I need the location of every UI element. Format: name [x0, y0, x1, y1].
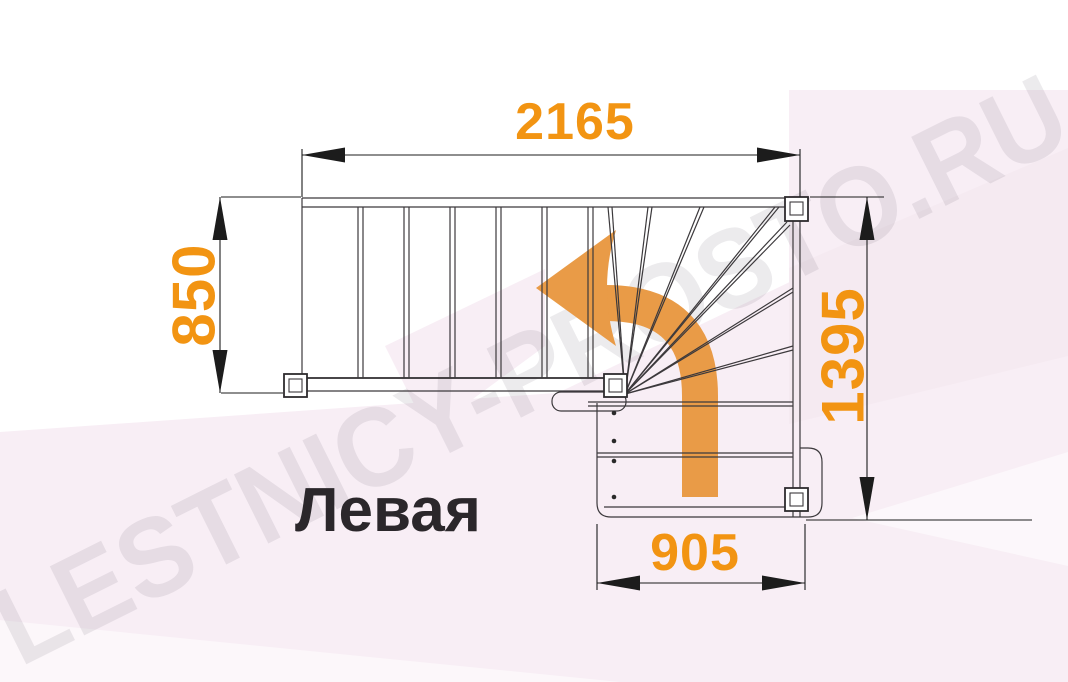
dimension-left-label: 850 — [161, 243, 228, 346]
tread-dot — [612, 411, 617, 416]
tread-dot — [612, 495, 617, 500]
newel-post-bottom-right — [785, 488, 808, 511]
tread-dot — [612, 459, 617, 464]
tread-dot — [612, 439, 617, 444]
dimension-right-label: 1395 — [810, 287, 877, 424]
newel-post-left — [284, 374, 307, 397]
newel-post-central — [604, 374, 627, 397]
dimension-bottom-label: 905 — [650, 524, 740, 582]
dimension-top-label: 2165 — [515, 93, 635, 151]
newel-post-top-right — [785, 197, 808, 221]
stair-variant-label: Левая — [295, 476, 481, 545]
stair-plan-canvas: LESTNICY-PROSTO.RU — [0, 0, 1068, 682]
